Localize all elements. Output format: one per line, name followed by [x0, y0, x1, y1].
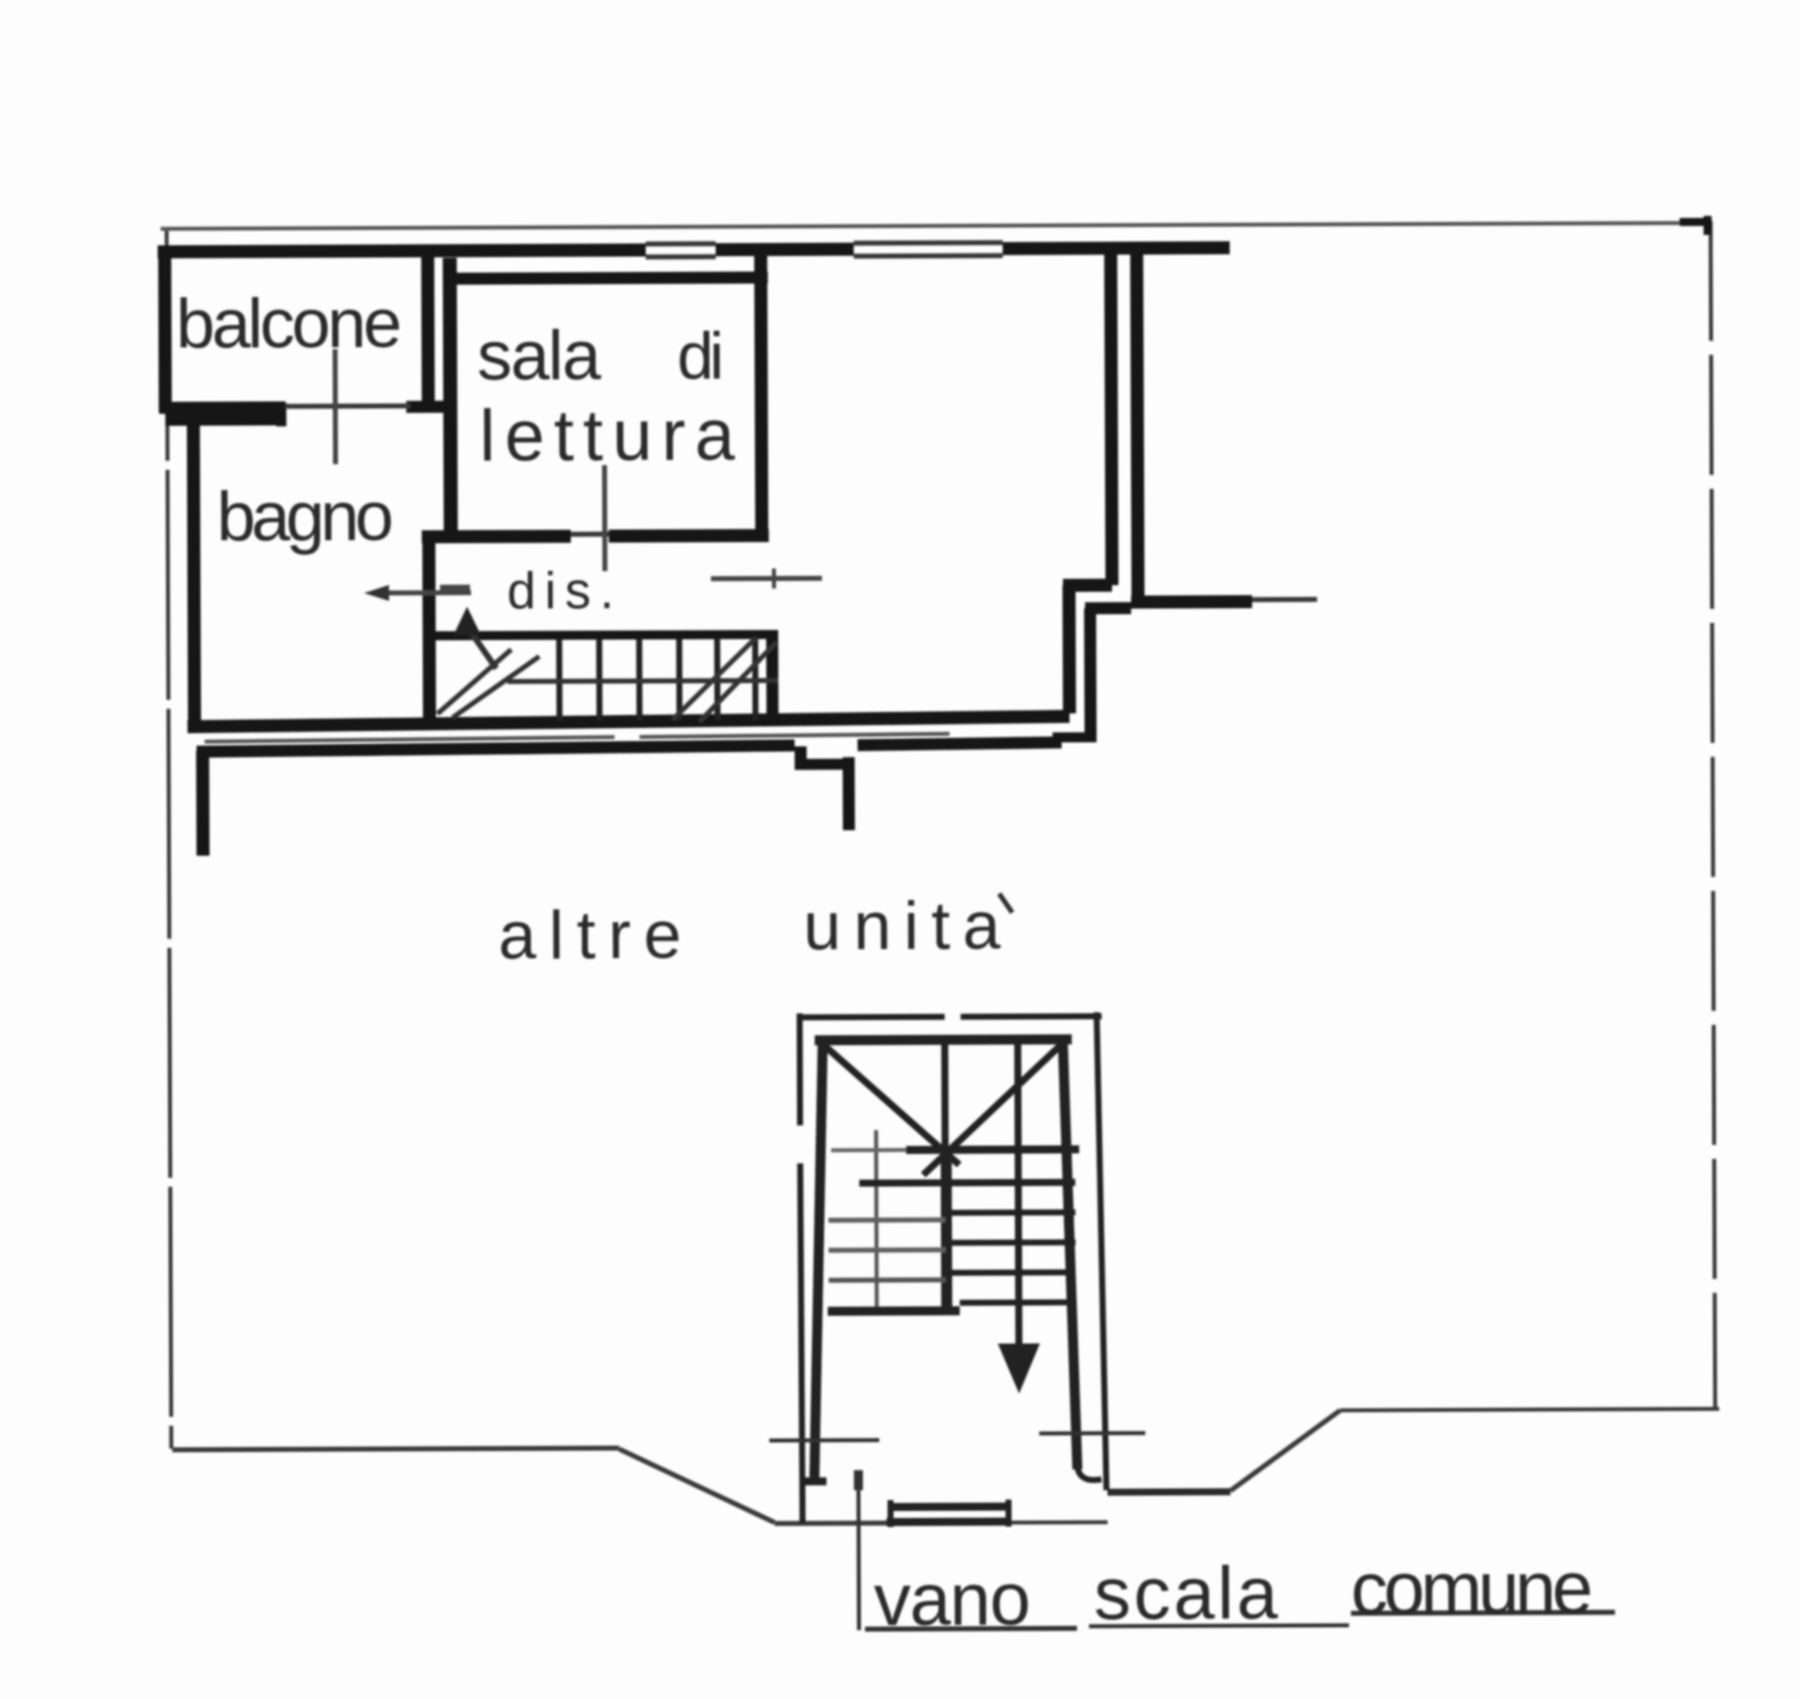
- svg-text:comune: comune: [1351, 1546, 1590, 1630]
- svg-text:scala: scala: [1094, 1552, 1281, 1636]
- svg-text:balcone: balcone: [176, 284, 399, 363]
- svg-text:vano: vano: [874, 1558, 1030, 1642]
- svg-text:di: di: [677, 319, 721, 393]
- svg-text:bagno: bagno: [217, 477, 391, 556]
- svg-text:altre: altre: [498, 897, 694, 974]
- svg-text:dis.: dis.: [507, 562, 623, 620]
- svg-text:sala: sala: [477, 316, 601, 394]
- svg-text:unita: unita: [803, 888, 1013, 965]
- svg-text:lettura: lettura: [479, 396, 744, 477]
